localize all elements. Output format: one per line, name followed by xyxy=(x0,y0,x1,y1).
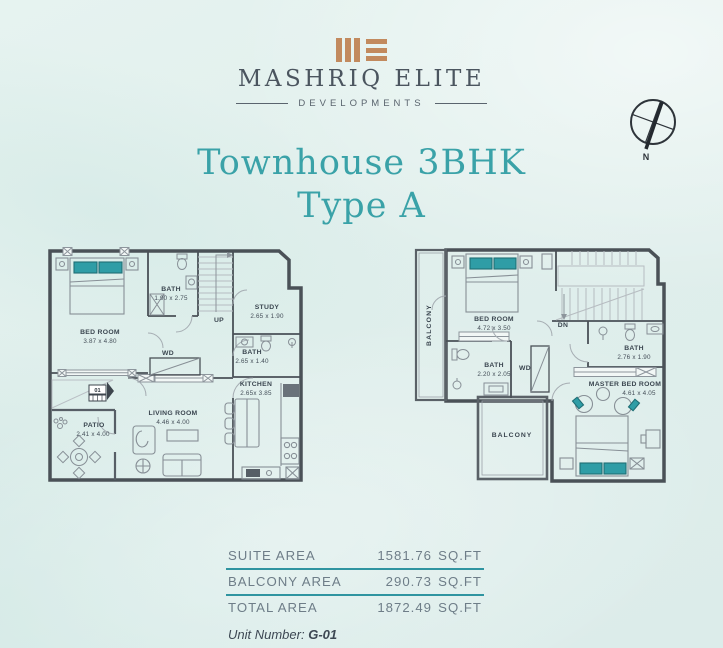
unit-number-label: Unit Number: xyxy=(228,627,305,642)
first-floor-plan: BALCONY BED ROOM 4.72 x 3.50 DN BATH 2.2… xyxy=(406,236,708,502)
room-dims-living: 4.46 x 4.00 xyxy=(156,419,190,426)
ground-wd-closet xyxy=(150,358,200,375)
room-label-bath-top: BATH xyxy=(161,286,181,293)
title-line2: Type A xyxy=(0,185,723,228)
unit-number-line: Unit Number: G-01 xyxy=(226,627,484,642)
room-dims-bath-right: 2.76 x 1.90 xyxy=(617,354,651,361)
entry-door-badge: 01 xyxy=(94,388,100,394)
stairs-up-label: UP xyxy=(214,317,224,324)
room-dims-bedroom: 3.87 x 4.80 xyxy=(83,338,117,345)
room-dims-bath-left: 2.20 x 2.05 xyxy=(477,371,511,378)
ground-entry: 01 xyxy=(52,380,114,408)
suite-area-unit: SQ.FT xyxy=(432,548,482,563)
brochure-page: MASHRIQ ELITE DEVELOPMENTS Townhouse 3BH… xyxy=(0,0,723,648)
suite-area-label: SUITE AREA xyxy=(228,548,368,563)
ground-stairs-arrow xyxy=(216,252,233,312)
table-row: BALCONY AREA 290.73 SQ.FT xyxy=(226,570,484,596)
table-row: SUITE AREA 1581.76 SQ.FT xyxy=(226,544,484,570)
first-master-furniture xyxy=(560,388,660,477)
balcony-area-value: 290.73 xyxy=(368,574,432,589)
ground-room-labels: BED ROOM 3.87 x 4.80 BATH 1.90 x 2.75 UP… xyxy=(76,286,284,438)
total-area-unit: SQ.FT xyxy=(432,600,482,615)
room-dims-study: 2.65 x 1.90 xyxy=(250,313,284,320)
room-dims-patio: 2.41 x 4.00 xyxy=(76,431,110,438)
room-label-bath-right: BATH xyxy=(624,345,644,352)
room-label-bedroom: BED ROOM xyxy=(80,329,120,336)
room-label-bath-mid: BATH xyxy=(242,349,262,356)
room-dims-bedroom: 4.72 x 3.50 xyxy=(477,325,511,332)
room-label-kitchen: KITCHEN xyxy=(240,381,272,388)
ground-floor-plan: 01 xyxy=(30,238,320,496)
stairs-dn-label: DN xyxy=(558,322,568,329)
room-dims-kitchen: 2.65x 3.85 xyxy=(240,390,272,397)
room-label-patio: PATIO xyxy=(83,422,104,429)
title-line1: Townhouse 3BHK xyxy=(0,142,723,185)
ground-bed xyxy=(56,258,138,314)
ground-kitchen-furniture xyxy=(225,383,299,479)
compass-north-label: N xyxy=(643,152,650,162)
room-label-bath-left: BATH xyxy=(484,362,504,369)
wd-label: WD xyxy=(162,350,174,357)
first-wd-closet xyxy=(531,346,549,392)
area-summary-table: SUITE AREA 1581.76 SQ.FT BALCONY AREA 29… xyxy=(226,544,484,642)
balcony-side-label: BALCONY xyxy=(426,304,433,346)
total-area-value: 1872.49 xyxy=(368,600,432,615)
tagline-rule-right xyxy=(435,103,487,104)
table-row: TOTAL AREA 1872.49 SQ.FT xyxy=(226,596,484,620)
brand-name: MASHRIQ ELITE xyxy=(0,66,723,92)
room-label-bedroom: BED ROOM xyxy=(474,316,514,323)
room-dims-master: 4.61 x 4.05 xyxy=(622,390,656,397)
room-label-master: MASTER BED ROOM xyxy=(589,381,662,388)
brand-tagline-text: DEVELOPMENTS xyxy=(298,98,424,109)
first-bath-right-fixtures xyxy=(599,324,663,341)
first-master-closet xyxy=(574,368,656,377)
brand-tagline: DEVELOPMENTS xyxy=(0,98,723,109)
room-dims-bath-top: 1.90 x 2.75 xyxy=(154,295,188,302)
page-title: Townhouse 3BHK Type A xyxy=(0,142,723,227)
ground-living-furniture xyxy=(133,426,201,476)
room-label-study: STUDY xyxy=(255,304,280,311)
brand-logo-icon xyxy=(336,38,387,62)
unit-number-value: G-01 xyxy=(308,627,337,642)
balcony-area-unit: SQ.FT xyxy=(432,574,482,589)
room-dims-bath-mid: 2.65 x 1.40 xyxy=(235,358,269,365)
logo-vertical-bars-icon xyxy=(336,38,360,62)
logo-horizontal-bars-icon xyxy=(366,38,387,61)
first-stairs xyxy=(556,251,644,320)
balcony-bottom-label: BALCONY xyxy=(492,432,533,439)
total-area-label: TOTAL AREA xyxy=(228,600,368,615)
tagline-rule-left xyxy=(236,103,288,104)
first-bed xyxy=(452,254,552,312)
room-label-living: LIVING ROOM xyxy=(149,410,198,417)
ground-bath-top-fixtures xyxy=(150,254,197,315)
balcony-area-label: BALCONY AREA xyxy=(228,574,368,589)
suite-area-value: 1581.76 xyxy=(368,548,432,563)
compass-icon: N xyxy=(620,92,690,166)
wd-label: WD xyxy=(519,365,531,372)
